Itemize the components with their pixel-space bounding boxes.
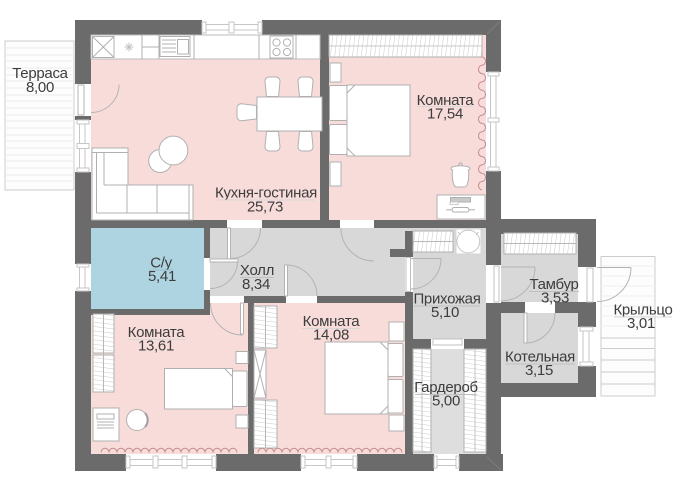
svg-text:3,53: 3,53 bbox=[541, 290, 569, 307]
svg-text:3,01: 3,01 bbox=[627, 315, 655, 332]
svg-text:8,34: 8,34 bbox=[242, 276, 270, 293]
svg-text:5,41: 5,41 bbox=[148, 268, 176, 285]
svg-text:3,15: 3,15 bbox=[525, 362, 553, 379]
svg-text:5,00: 5,00 bbox=[432, 393, 460, 410]
svg-text:13,61: 13,61 bbox=[138, 338, 174, 355]
svg-text:17,54: 17,54 bbox=[427, 106, 463, 123]
svg-text:14,08: 14,08 bbox=[313, 327, 349, 344]
svg-text:8,00: 8,00 bbox=[26, 79, 54, 96]
svg-text:25,73: 25,73 bbox=[247, 199, 283, 216]
svg-text:5,10: 5,10 bbox=[431, 304, 459, 321]
